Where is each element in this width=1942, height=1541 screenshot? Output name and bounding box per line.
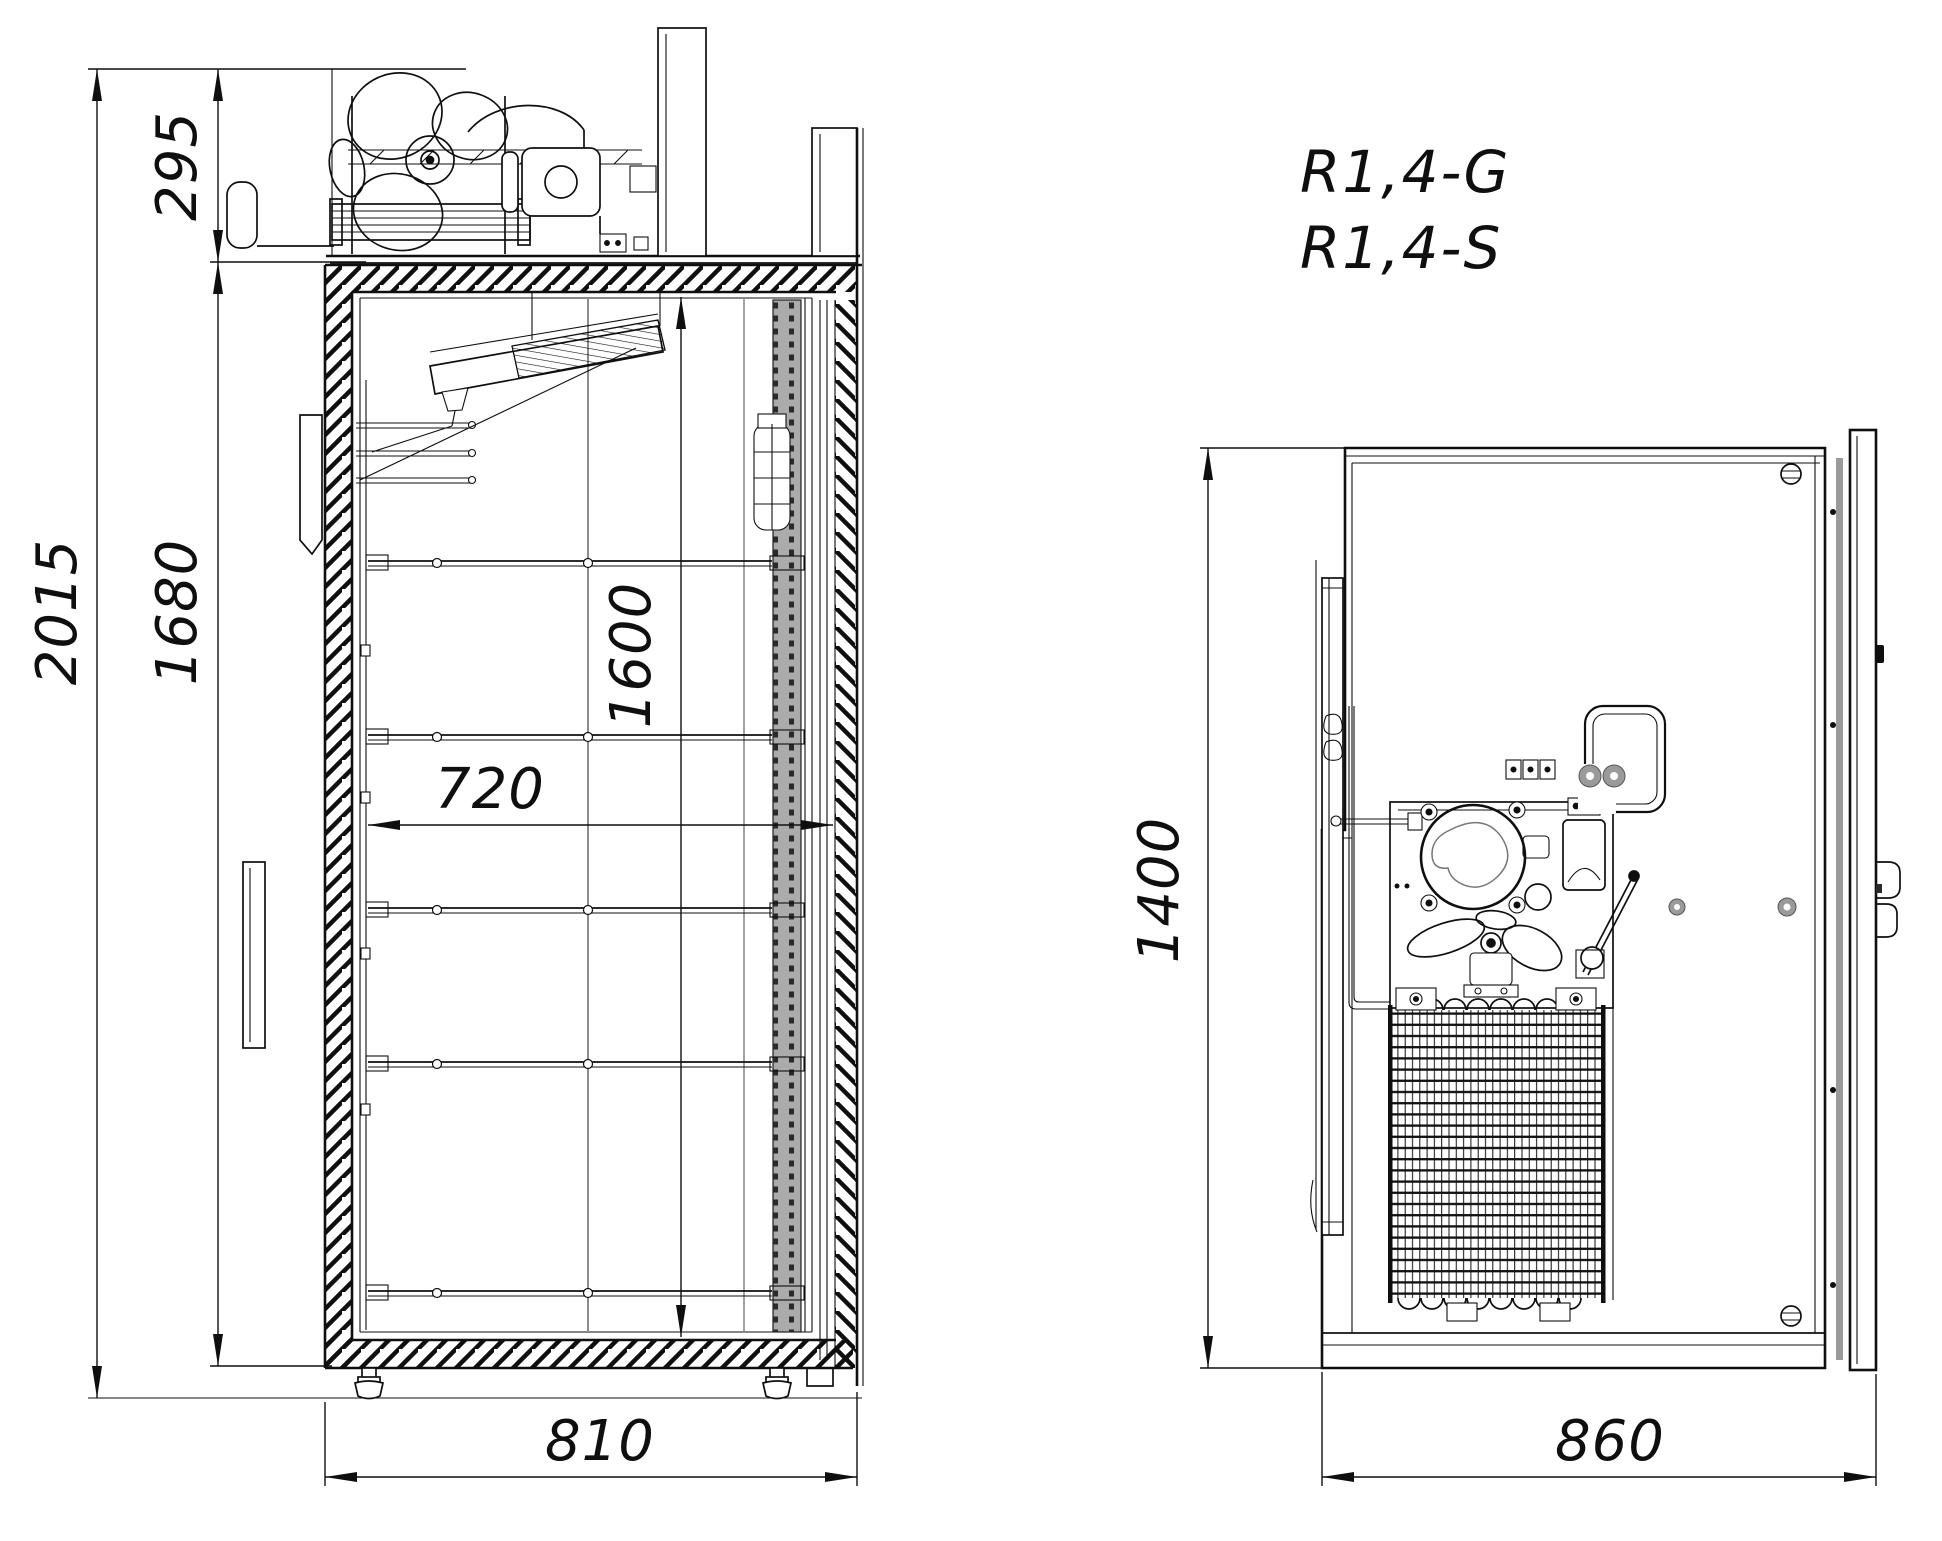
plan-machinery	[1331, 706, 1685, 1321]
side-section-view: 2015 295 1680	[25, 28, 863, 1486]
plan-fan	[1403, 908, 1569, 997]
door-insulation	[835, 300, 857, 1368]
foot	[763, 1368, 791, 1399]
dimension-overall-depth: 860	[1322, 1372, 1876, 1486]
junction-box	[600, 234, 648, 252]
shelves	[366, 555, 804, 1300]
front-top-panels	[630, 28, 857, 256]
door-section	[754, 128, 863, 1386]
drain-funnel	[372, 388, 468, 452]
shelf	[366, 555, 804, 570]
condenser-fan	[324, 58, 517, 261]
evaporator-support	[356, 348, 636, 484]
dimension-body-depth: 810	[325, 1392, 857, 1486]
plan-rear-strip	[1311, 560, 1343, 1235]
model-labels: R1,4-G R1,4-S	[1300, 138, 1510, 282]
drawing-sheet: 2015 295 1680	[0, 0, 1942, 1541]
dim-label-860: 860	[1555, 1409, 1665, 1474]
dim-label-810: 810	[545, 1409, 655, 1474]
shelf	[366, 902, 804, 917]
dim-label-1400: 1400	[1127, 817, 1192, 964]
shelf-rail-rear-ticks	[361, 380, 370, 1330]
left-wall-insulation	[325, 265, 352, 1368]
foot	[355, 1368, 383, 1399]
dimension-interior-depth: 720	[368, 757, 833, 830]
plan-condenser-grid	[1388, 988, 1606, 1321]
top-plan-view: 1400	[1127, 430, 1900, 1486]
door-stop-bump	[1876, 645, 1884, 663]
plan-terminal-block	[1506, 760, 1555, 779]
rear-pipe-loop	[227, 182, 334, 248]
door-bottom-bracket	[807, 1368, 833, 1386]
compressor-side	[468, 105, 600, 234]
model-label-1: R1,4-G	[1300, 138, 1510, 206]
leveling-feet	[355, 1368, 791, 1399]
bottom-shelf	[366, 1285, 804, 1300]
evaporator-assembly	[356, 292, 665, 484]
grommet	[1778, 898, 1796, 916]
door-lock-housing	[754, 414, 790, 530]
door-gasket-strip	[1836, 458, 1843, 1360]
dimension-clear-height: 1600	[599, 297, 686, 1337]
rear-wall-brackets	[243, 415, 322, 1048]
plan-door	[1830, 430, 1900, 1370]
top-insulation	[325, 265, 857, 292]
dim-label-2015: 2015	[25, 539, 90, 686]
dim-label-720: 720	[435, 757, 545, 822]
dim-label-1600: 1600	[599, 582, 664, 729]
condenser-coil	[330, 199, 530, 245]
model-label-2: R1,4-S	[1300, 214, 1502, 282]
screw-head	[1781, 464, 1801, 484]
dim-label-295: 295	[145, 111, 210, 221]
machinery-compartment	[227, 28, 860, 263]
plan-fasteners	[1778, 464, 1801, 1326]
hinge-clamp	[1876, 904, 1897, 937]
plan-pipe-loop	[1578, 706, 1665, 814]
screw-head	[1781, 1306, 1801, 1326]
bottom-insulation	[325, 1340, 853, 1368]
shelf	[366, 729, 804, 744]
shelf	[366, 1056, 804, 1071]
dimension-machinery-height: 295	[145, 69, 366, 262]
dim-label-1680: 1680	[145, 539, 210, 686]
